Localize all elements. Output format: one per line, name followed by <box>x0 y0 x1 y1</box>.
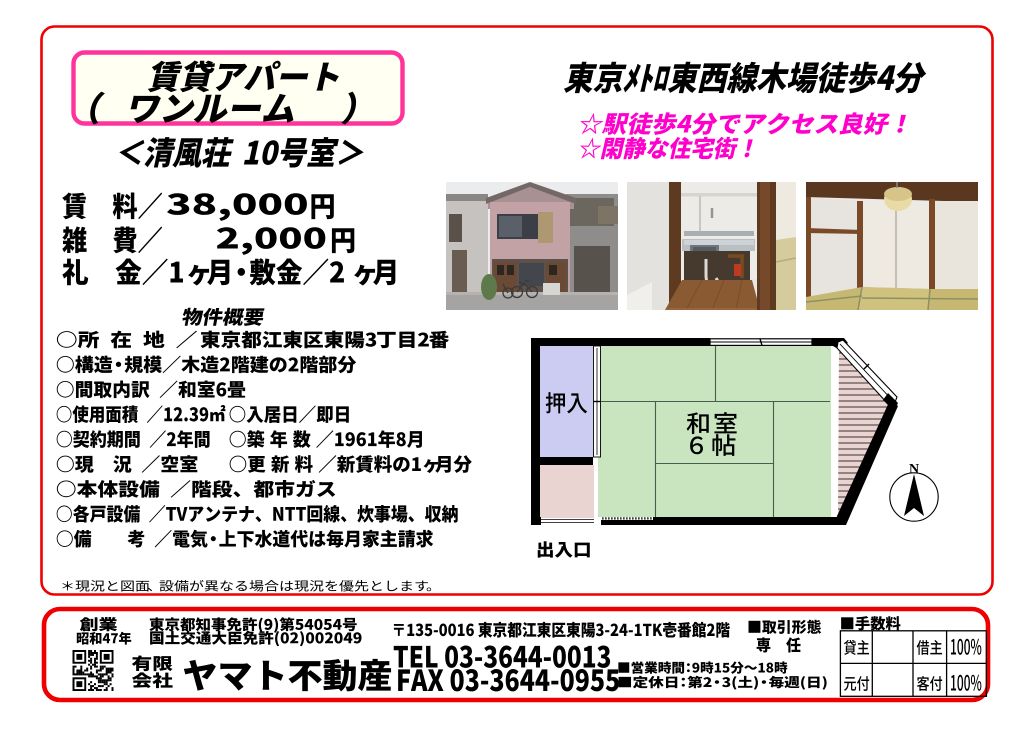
svg-text:N: N <box>909 462 919 477</box>
